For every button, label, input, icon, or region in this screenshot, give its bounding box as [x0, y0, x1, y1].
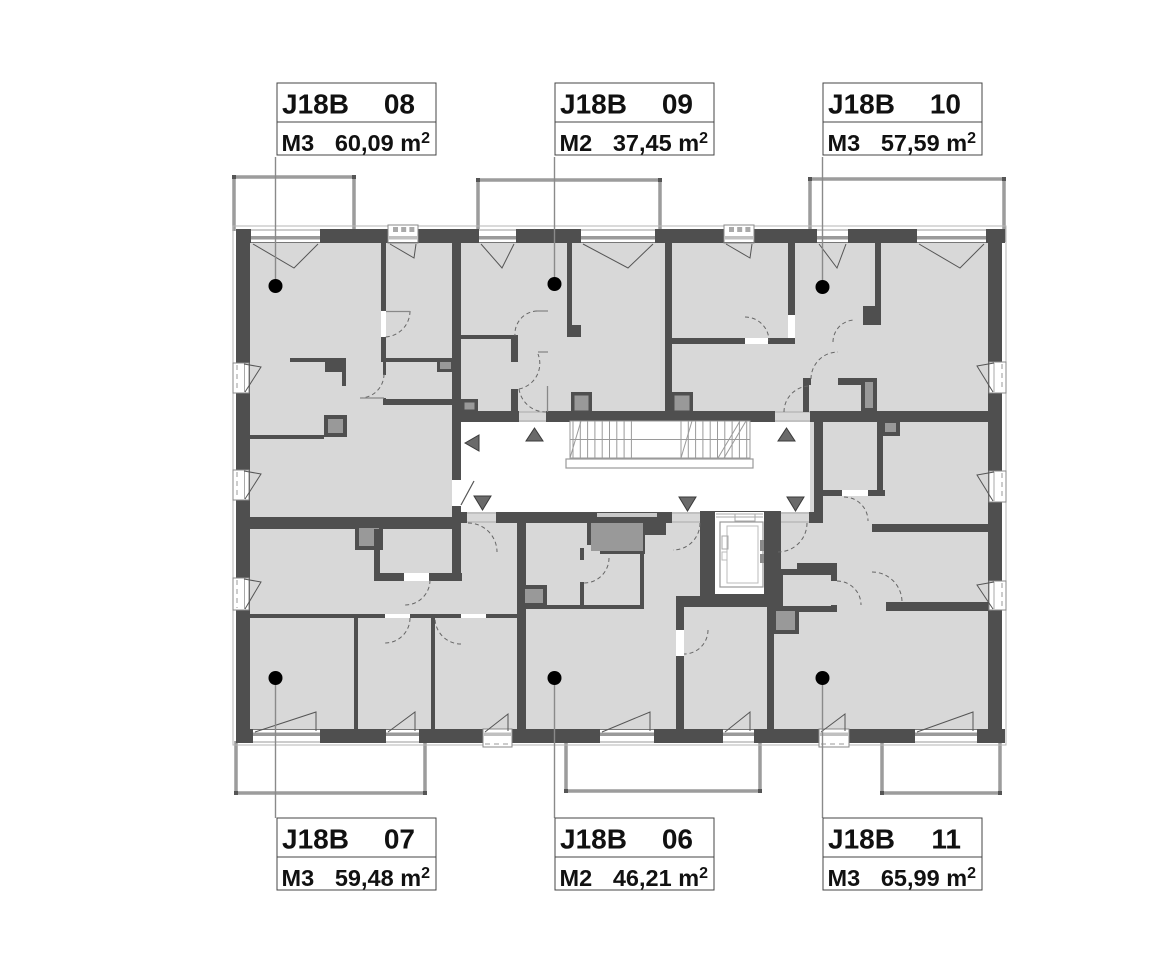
svg-text:59,48 m2: 59,48 m2 — [335, 865, 430, 891]
svg-text:M3: M3 — [282, 130, 315, 156]
svg-text:11: 11 — [931, 824, 961, 855]
svg-text:M3: M3 — [828, 130, 861, 156]
svg-text:10: 10 — [930, 89, 961, 120]
svg-text:60,09 m2: 60,09 m2 — [335, 130, 430, 156]
svg-text:J18B: J18B — [828, 824, 895, 855]
svg-text:08: 08 — [384, 89, 415, 120]
svg-text:J18B: J18B — [828, 89, 895, 120]
svg-text:J18B: J18B — [560, 824, 627, 855]
svg-text:J18B: J18B — [282, 89, 349, 120]
svg-text:37,45 m2: 37,45 m2 — [613, 130, 708, 156]
svg-text:07: 07 — [384, 824, 415, 855]
svg-text:09: 09 — [662, 89, 693, 120]
svg-text:46,21 m2: 46,21 m2 — [613, 865, 708, 891]
svg-text:M2: M2 — [560, 130, 593, 156]
svg-text:65,99 m2: 65,99 m2 — [881, 865, 976, 891]
svg-text:57,59 m2: 57,59 m2 — [881, 130, 976, 156]
svg-text:06: 06 — [662, 824, 693, 855]
svg-text:J18B: J18B — [560, 89, 627, 120]
svg-text:J18B: J18B — [282, 824, 349, 855]
svg-text:M3: M3 — [828, 865, 861, 891]
svg-text:M2: M2 — [560, 865, 593, 891]
svg-text:M3: M3 — [282, 865, 315, 891]
